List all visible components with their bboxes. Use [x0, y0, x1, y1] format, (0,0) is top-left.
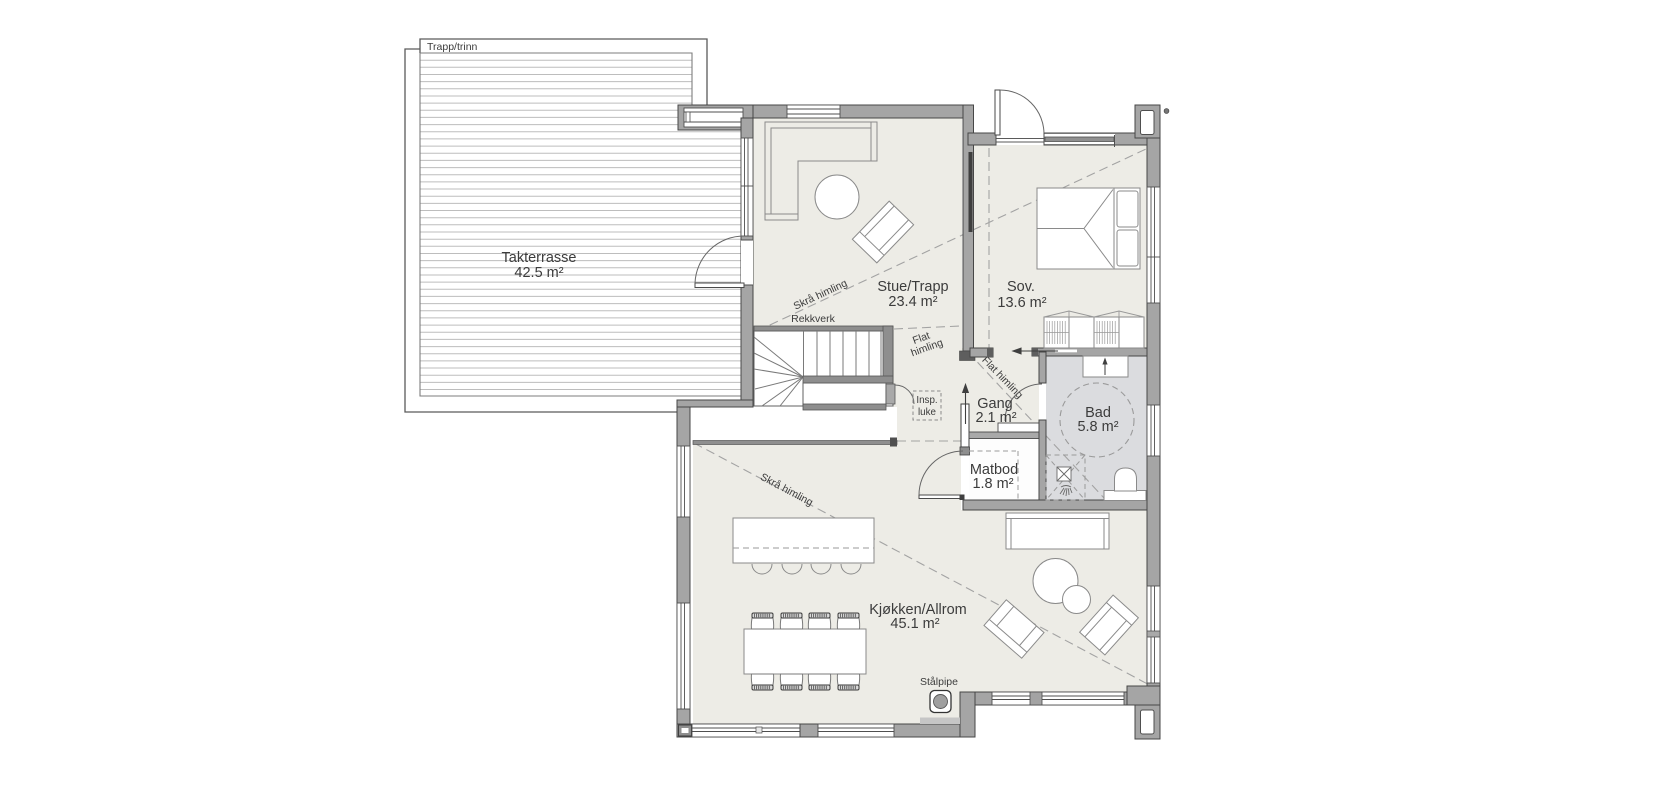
- svg-text:45.1 m²: 45.1 m²: [890, 616, 939, 632]
- svg-text:13.6 m²: 13.6 m²: [997, 295, 1046, 311]
- svg-text:Rekkverk: Rekkverk: [791, 313, 836, 325]
- svg-text:Stålpipe: Stålpipe: [920, 676, 958, 688]
- svg-text:Sov.: Sov.: [1007, 279, 1035, 295]
- svg-text:Insp.: Insp.: [916, 395, 937, 406]
- svg-text:2.1 m²: 2.1 m²: [975, 410, 1016, 426]
- svg-text:Stue/Trapp: Stue/Trapp: [877, 279, 948, 295]
- svg-text:Trapp/trinn: Trapp/trinn: [427, 41, 478, 53]
- svg-text:1.8 m²: 1.8 m²: [972, 476, 1013, 492]
- svg-text:23.4 m²: 23.4 m²: [888, 294, 937, 310]
- svg-text:Takterrasse: Takterrasse: [502, 250, 577, 266]
- svg-text:luke: luke: [918, 407, 937, 418]
- svg-text:5.8 m²: 5.8 m²: [1077, 419, 1118, 435]
- svg-text:42.5 m²: 42.5 m²: [514, 265, 563, 281]
